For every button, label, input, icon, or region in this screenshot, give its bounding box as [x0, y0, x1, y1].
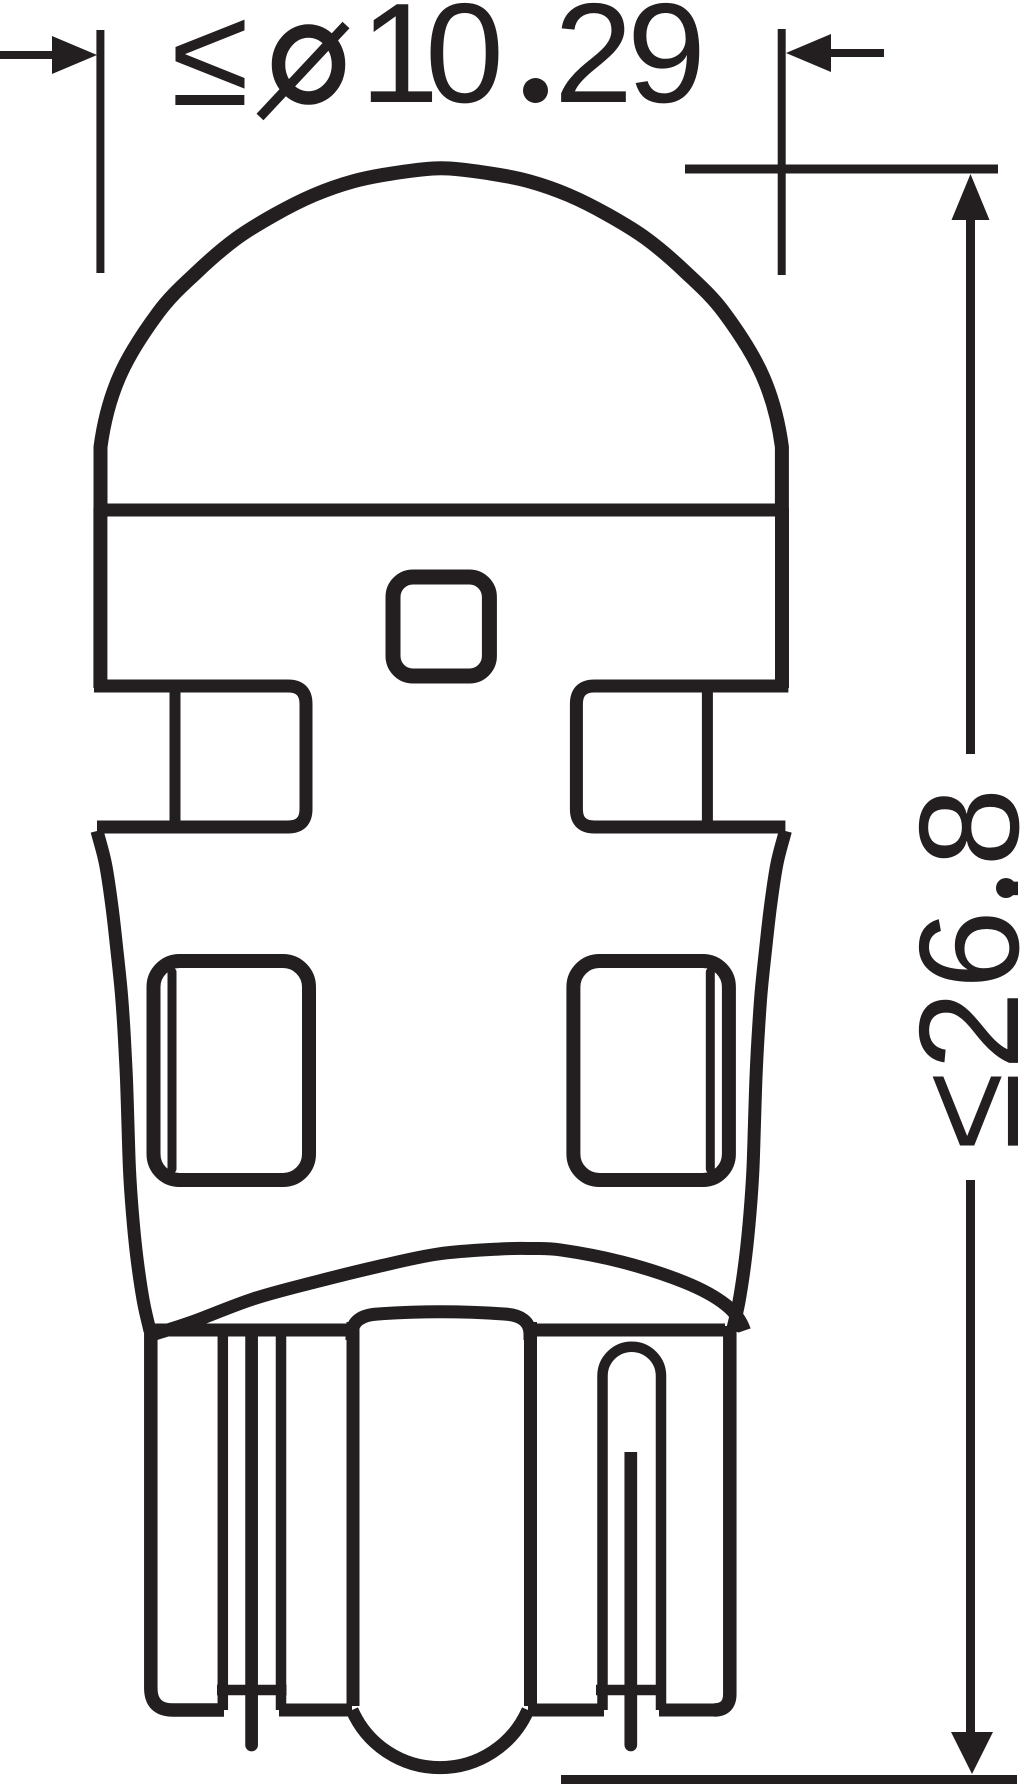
svg-text:≤1029: ≤1029: [171, 0, 706, 136]
svg-text:≤26.8: ≤26.8: [890, 786, 1024, 1150]
